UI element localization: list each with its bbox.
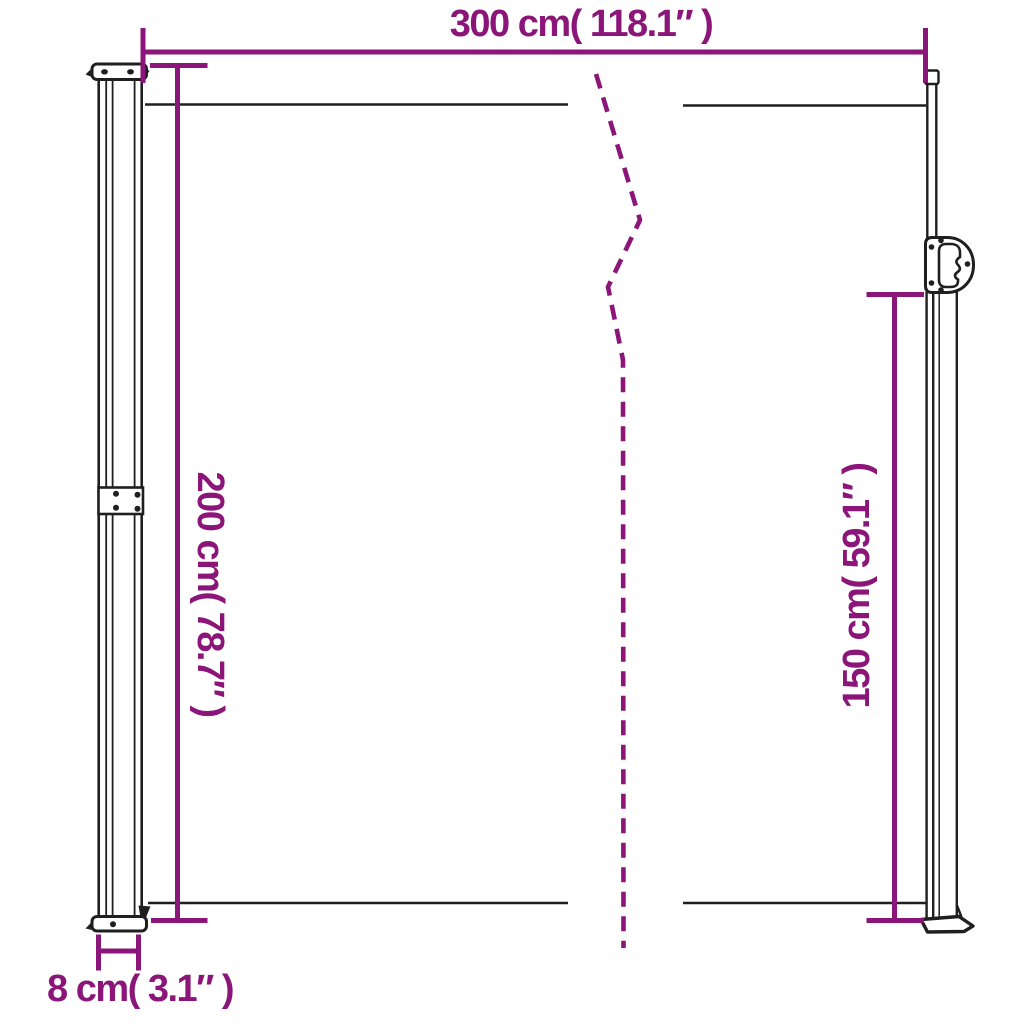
extension-break-line bbox=[596, 74, 640, 948]
dim-depth-line bbox=[99, 935, 139, 971]
left-cassette-post bbox=[86, 63, 151, 932]
pull-handle bbox=[926, 238, 974, 293]
right-front-pole bbox=[925, 71, 962, 920]
dimension-label-height-right: 150 cm( 59.1″ ) bbox=[838, 464, 878, 709]
pole-base-plate bbox=[921, 917, 973, 933]
fabric-top-edge bbox=[145, 105, 926, 106]
dimension-label-height-left: 200 cm( 78.7″ ) bbox=[189, 472, 229, 717]
cassette-top-cap bbox=[86, 63, 150, 83]
cassette-middle-bracket bbox=[99, 488, 144, 515]
awning-dimension-diagram: 300 cm( 118.1″ ) 200 cm( 78.7″ ) 150 cm(… bbox=[0, 0, 1024, 1024]
dimension-label-depth: 8 cm( 3.1″ ) bbox=[47, 970, 233, 1010]
dimension-label-width: 300 cm( 118.1″ ) bbox=[450, 5, 713, 45]
cassette-bottom-cap bbox=[86, 906, 151, 932]
